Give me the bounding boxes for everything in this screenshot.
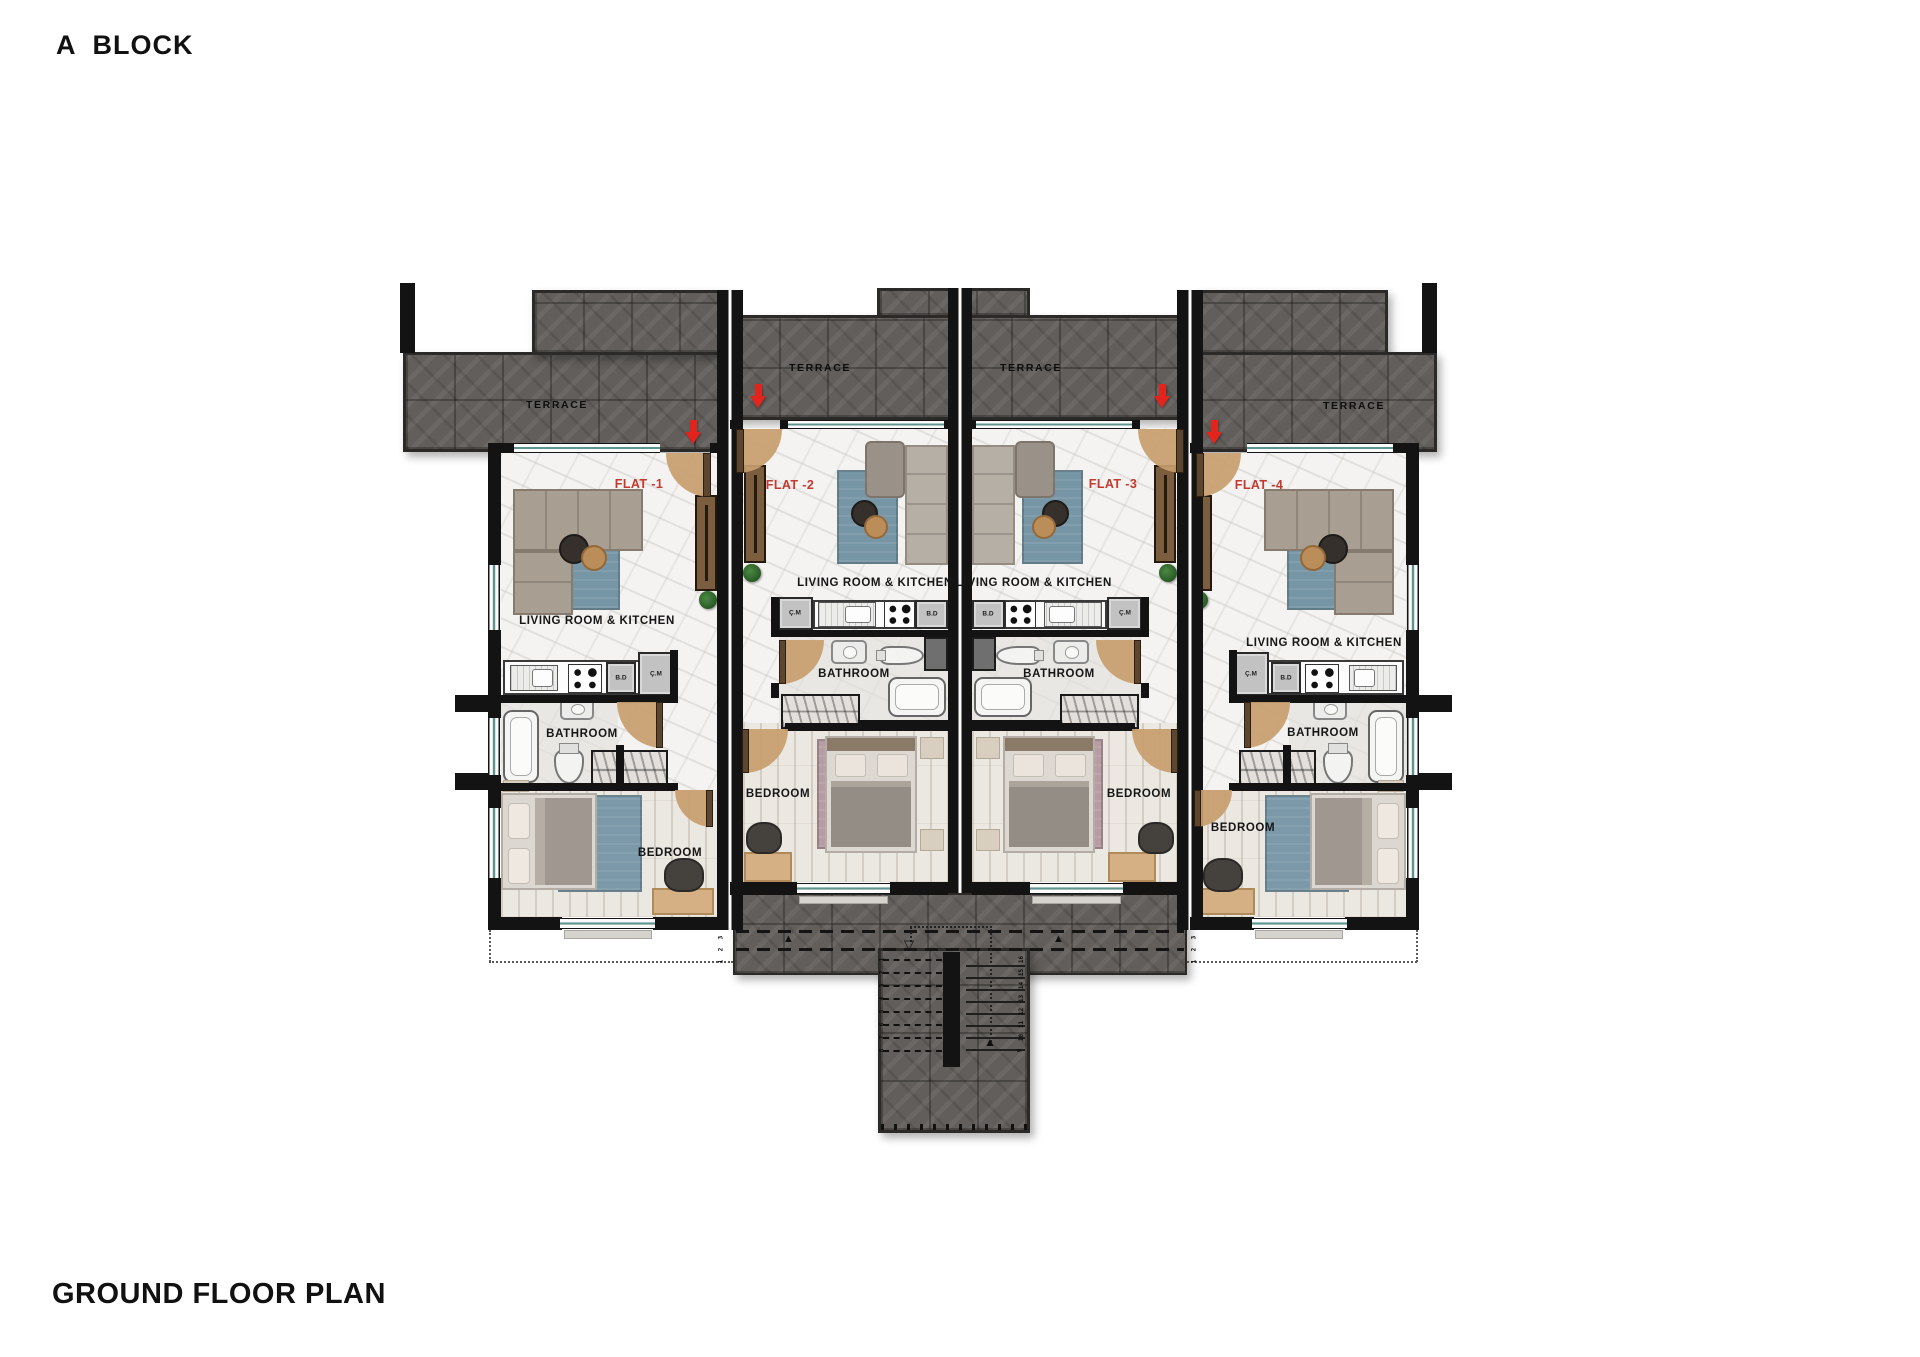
terrace-flat4-upper [1192, 290, 1388, 355]
bed [1003, 736, 1095, 853]
side-table [1300, 545, 1326, 571]
side-table [920, 737, 944, 759]
bathroom-door-leaf [779, 640, 786, 684]
side-table [976, 829, 1000, 851]
wall-stub [1417, 695, 1452, 712]
entry-door-leaf [1196, 453, 1204, 497]
entry-arrow-icon [1154, 384, 1170, 409]
stair-path [990, 926, 992, 1042]
window [797, 883, 890, 894]
bathroom-label: BATHROOM [1023, 668, 1095, 680]
window-sill [1255, 930, 1343, 939]
flat-label: FLAT -1 [615, 477, 663, 491]
bd-label: B.D [982, 611, 993, 618]
walkway-step-line [736, 930, 1184, 933]
stair-number: 6 [878, 1023, 885, 1027]
tv-cabinet [744, 465, 766, 563]
washbasin [831, 640, 867, 664]
walk-step-number: 3 [1190, 936, 1197, 940]
shower-unit [924, 637, 948, 671]
bed [1310, 793, 1406, 890]
step-direction-icon: ▲ [783, 934, 794, 945]
walk-step-number: 3 [717, 936, 724, 940]
bedroom-door-leaf [1171, 729, 1178, 773]
flat-label: FLAT -2 [766, 478, 814, 492]
window [1407, 808, 1419, 878]
desk [652, 888, 714, 915]
stair-number: 16 [1018, 956, 1025, 963]
flat-label: FLAT -4 [1235, 478, 1283, 492]
stair-down-icon: ▽ [904, 938, 914, 951]
window [488, 565, 500, 630]
side-table [1032, 515, 1056, 539]
side-table [581, 545, 607, 571]
stove [568, 664, 602, 693]
plant [699, 591, 717, 609]
toilet [880, 646, 924, 665]
terrace-label: TERRACE [789, 362, 851, 374]
shower-unit [972, 637, 996, 671]
wall-stub [455, 773, 490, 790]
desk [1108, 852, 1156, 882]
living-label: LIVING ROOM & KITCHEN [1246, 637, 1402, 649]
bedroom-label: BEDROOM [1107, 788, 1171, 800]
living-label: LIVING ROOM & KITCHEN [956, 577, 1112, 589]
sofa [905, 445, 948, 565]
window [1407, 718, 1419, 775]
bd-label: B.D [615, 675, 626, 682]
bathtub [888, 677, 946, 717]
bedroom-door-leaf [742, 729, 749, 773]
party-wall-flat2-flat3 [948, 288, 972, 893]
bathroom-door-leaf [1134, 640, 1141, 684]
wall-stub [1417, 773, 1452, 790]
party-wall-flat3-flat4 [1177, 290, 1203, 930]
window [1030, 883, 1123, 894]
washbasin [1053, 640, 1089, 664]
kitchen-sink [818, 602, 876, 627]
stair-number: 13 [1018, 995, 1025, 1002]
stair-number: 2 [878, 971, 885, 975]
bd-label: B.D [1280, 675, 1291, 682]
terrace-label: TERRACE [1323, 400, 1385, 412]
wall-stub [455, 695, 490, 712]
window-sill [799, 896, 888, 904]
bathtub [974, 677, 1032, 717]
projection-line [1416, 930, 1418, 962]
window [788, 420, 944, 429]
walk-step-number: 1 [717, 960, 724, 964]
tv-cabinet [1154, 465, 1176, 563]
stove [1005, 601, 1036, 628]
bathroom-label: BATHROOM [546, 728, 618, 740]
stair-up-icon: ▲ [984, 1036, 996, 1048]
kitchen-sink [1044, 602, 1102, 627]
bathroom-label: BATHROOM [818, 668, 890, 680]
walkway-step-line [736, 948, 1184, 951]
stair-number: 4 [878, 997, 885, 1001]
stair-number: 15 [1018, 969, 1025, 976]
window [1407, 565, 1419, 630]
stair-number: 3 [878, 984, 885, 988]
entry-arrow-icon [1206, 420, 1222, 445]
chair [664, 858, 704, 892]
armchair [1015, 441, 1055, 498]
floor-plan-canvas: A BLOCK ▲ ▲ 3 2 1 3 2 1 1 2 3 4 5 6 7 8 … [0, 0, 1920, 1357]
bedroom-label: BEDROOM [638, 847, 702, 859]
bedroom-door-leaf [1194, 790, 1201, 827]
bedroom-label: BEDROOM [1211, 822, 1275, 834]
living-label: LIVING ROOM & KITCHEN [519, 615, 675, 627]
entry-arrow-icon [685, 420, 701, 445]
entry-door-leaf [1176, 429, 1184, 473]
stair-number: 8 [878, 1049, 885, 1053]
side-table [920, 829, 944, 851]
stair-number: 7 [878, 1036, 885, 1040]
window [1247, 443, 1393, 453]
sofa-chaise [1334, 551, 1394, 615]
terrace-wall-stub-left [400, 283, 415, 353]
chair [1203, 858, 1243, 892]
stair-number: 5 [878, 1010, 885, 1014]
step-direction-icon: ▲ [1053, 934, 1064, 945]
bathroom-label: BATHROOM [1287, 727, 1359, 739]
bathtub [1368, 710, 1404, 783]
cm-label: Ç.M [1119, 610, 1131, 617]
stair-number: 9 [1016, 1049, 1023, 1053]
window [488, 718, 500, 775]
bedroom-door-leaf [706, 790, 713, 827]
stair-number: 1 [878, 958, 885, 962]
cm-label: Ç.M [1245, 671, 1257, 678]
stair-number: 14 [1018, 982, 1025, 989]
stair-flight-left [881, 955, 944, 1061]
plant [743, 564, 761, 582]
cm-label: Ç.M [789, 610, 801, 617]
window [514, 443, 660, 453]
plan-title: GROUND FLOOR PLAN [52, 1278, 386, 1311]
stair-number: 12 [1018, 1008, 1025, 1015]
window [560, 918, 655, 929]
projection-line [1187, 961, 1417, 963]
stair-center-wall [943, 952, 960, 1067]
tv-cabinet [695, 495, 717, 591]
terrace-label: TERRACE [1000, 362, 1062, 374]
projection-line [489, 961, 733, 963]
bd-label: B.D [926, 611, 937, 618]
kitchen-sink [510, 665, 558, 691]
chair [1138, 822, 1174, 854]
bedroom-label: BEDROOM [746, 788, 810, 800]
party-wall-flat1-flat2 [717, 290, 743, 930]
walk-step-number: 1 [1190, 960, 1197, 964]
living-label: LIVING ROOM & KITCHEN [797, 577, 953, 589]
terrace-label: TERRACE [526, 399, 588, 411]
bed [825, 736, 917, 853]
window-sill [1032, 896, 1121, 904]
side-table [976, 737, 1000, 759]
window-sill [564, 930, 652, 939]
window [488, 808, 500, 878]
window [976, 420, 1132, 429]
plant [1159, 564, 1177, 582]
desk [744, 852, 792, 882]
window [1252, 918, 1347, 929]
block-title: A BLOCK [56, 30, 194, 61]
stove [884, 601, 915, 628]
bathroom-door-leaf [656, 702, 663, 748]
armchair [865, 441, 905, 498]
stove [1305, 664, 1339, 693]
terrace-flat4 [1192, 352, 1437, 452]
stair-number: 11 [1018, 1021, 1025, 1028]
projection-line [489, 930, 491, 962]
walk-step-number: 2 [1190, 948, 1197, 952]
bed [501, 793, 597, 890]
chair [746, 822, 782, 854]
kitchen-sink [1349, 665, 1397, 691]
entry-arrow-icon [750, 384, 766, 409]
stair-bottom-ticks [881, 1124, 1027, 1130]
entry-door-leaf [703, 453, 711, 497]
bathroom-door-leaf [1244, 702, 1251, 748]
terrace-flat1-upper [532, 290, 728, 355]
bathtub [503, 710, 539, 783]
entry-door-leaf [736, 429, 744, 473]
stair-path [910, 926, 992, 928]
sofa [972, 445, 1015, 565]
terrace-wall-stub-right [1422, 283, 1437, 353]
stair-number: 10 [1018, 1034, 1025, 1041]
flat-label: FLAT -3 [1089, 477, 1137, 491]
cm-label: Ç.M [650, 671, 662, 678]
walk-step-number: 2 [717, 948, 724, 952]
toilet [996, 646, 1040, 665]
side-table [864, 515, 888, 539]
